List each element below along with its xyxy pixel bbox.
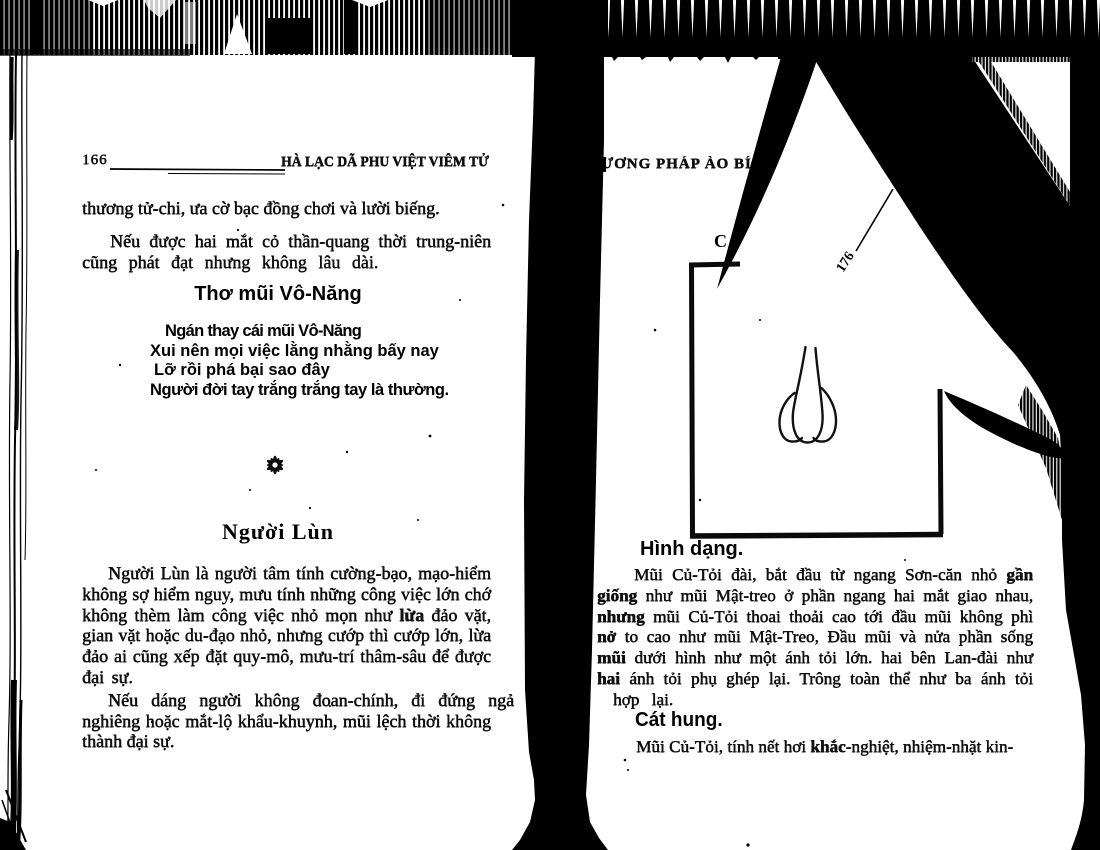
- svg-text:176: 176: [834, 249, 858, 275]
